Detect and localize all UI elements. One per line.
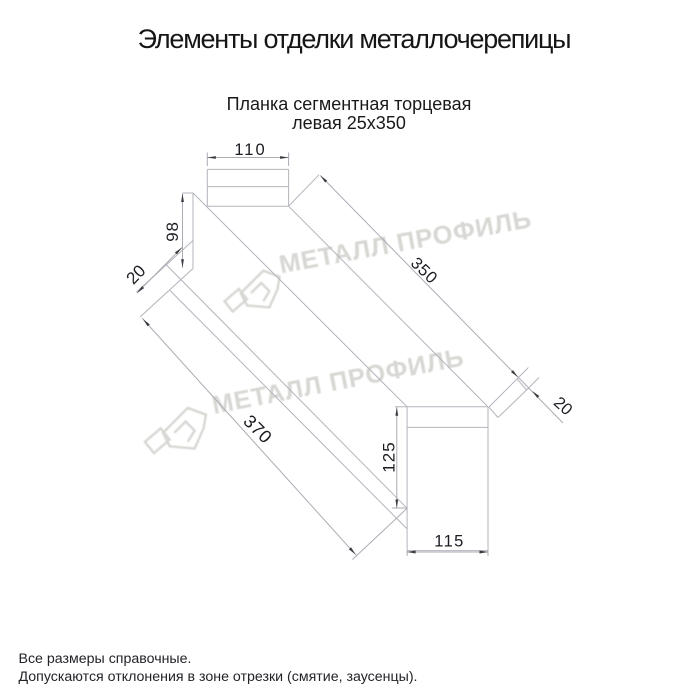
svg-text:МЕТАЛЛ ПРОФИЛЬ: МЕТАЛЛ ПРОФИЛЬ	[210, 344, 467, 420]
svg-text:350: 350	[407, 254, 441, 288]
svg-text:370: 370	[239, 411, 276, 448]
svg-text:125: 125	[380, 441, 399, 472]
svg-text:98: 98	[163, 221, 182, 242]
svg-text:левая 25x350: левая 25x350	[292, 113, 406, 133]
svg-text:115: 115	[434, 533, 465, 551]
svg-text:110: 110	[234, 141, 266, 159]
svg-text:Все размеры справочные.: Все размеры справочные.	[19, 651, 192, 667]
svg-text:Планка сегментная торцевая: Планка сегментная торцевая	[227, 94, 472, 114]
svg-text:Элементы отделки металлочерепи: Элементы отделки металлочерепицы	[138, 24, 571, 54]
svg-text:Допускаются отклонения в зоне: Допускаются отклонения в зоне отрезки (с…	[19, 669, 418, 685]
svg-text:МЕТАЛЛ ПРОФИЛЬ: МЕТАЛЛ ПРОФИЛЬ	[277, 205, 534, 279]
svg-text:20: 20	[550, 393, 576, 419]
